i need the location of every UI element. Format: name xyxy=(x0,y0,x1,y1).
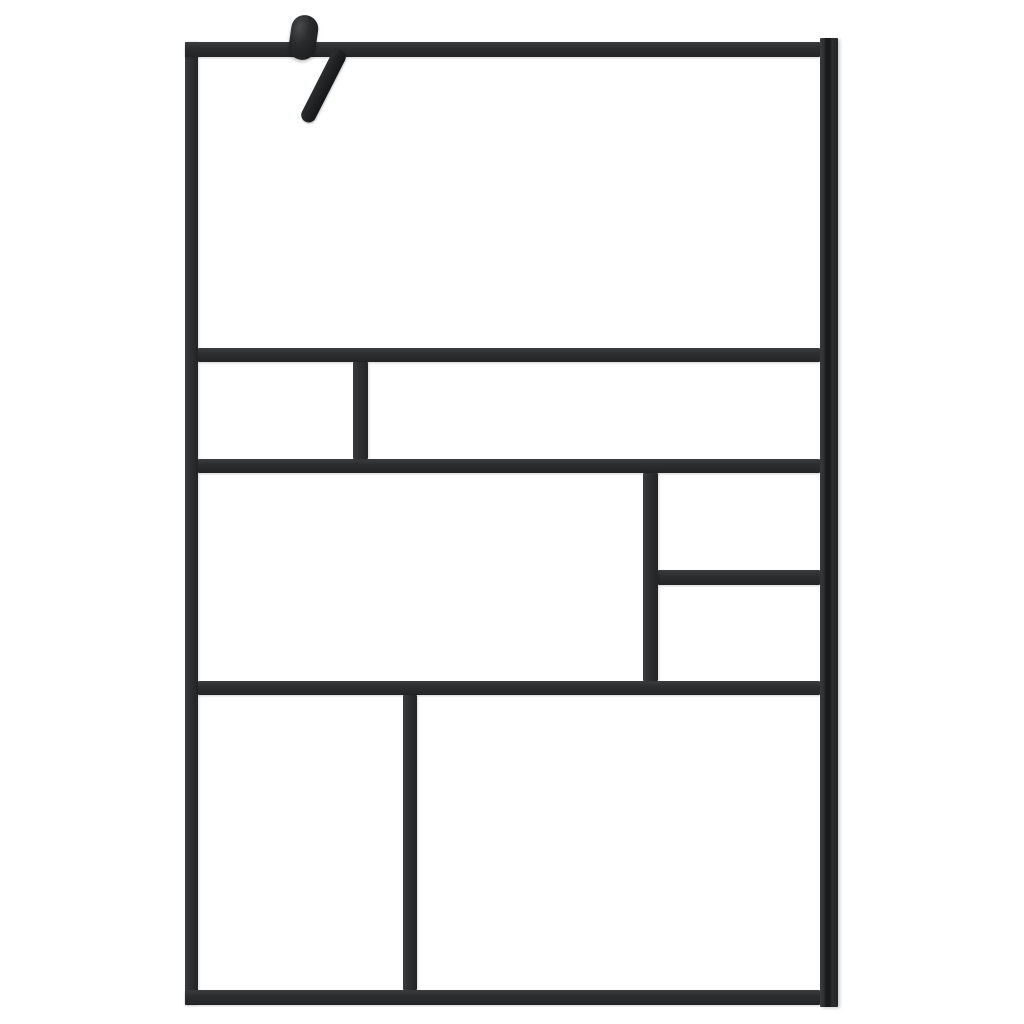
glass-pane-row3-left xyxy=(198,473,643,681)
wall-mount-profile xyxy=(820,38,838,1007)
frame-top-rail xyxy=(185,42,820,57)
frame-bottom-rail xyxy=(185,990,820,1005)
divider-horizontal-right-sub xyxy=(658,570,820,585)
glass-pane-row3-right-bottom xyxy=(658,585,820,681)
frame-left-stile xyxy=(185,42,198,1005)
glass-pane-row4-right xyxy=(417,695,820,990)
glass-pane-row3-right-top xyxy=(658,473,820,570)
divider-horizontal-2 xyxy=(198,459,820,473)
divider-vertical-row2 xyxy=(353,362,368,459)
divider-vertical-row3 xyxy=(643,473,658,681)
glass-pane-row2-left xyxy=(198,362,353,459)
glass-pane-row4-left xyxy=(198,695,403,990)
divider-horizontal-3 xyxy=(198,681,820,695)
shower-screen-product-image xyxy=(0,0,1024,1024)
divider-vertical-row4 xyxy=(403,695,417,990)
glass-pane-top xyxy=(198,57,820,348)
divider-horizontal-1 xyxy=(198,348,820,362)
glass-pane-row2-right xyxy=(368,362,820,459)
